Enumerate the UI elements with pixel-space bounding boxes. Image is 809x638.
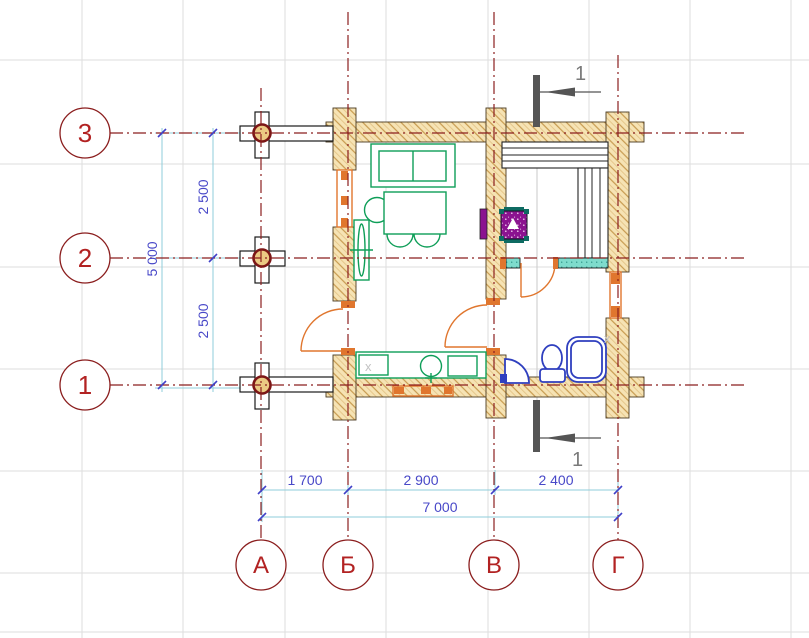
sauna-stove xyxy=(480,207,529,243)
window-left xyxy=(337,170,352,227)
axis-bubble-label: А xyxy=(253,552,269,579)
dining-set xyxy=(365,192,447,247)
axis-bubble-label: Г xyxy=(612,552,625,579)
wall-left-lower xyxy=(333,355,356,420)
entry-door xyxy=(301,301,355,355)
wall-internal-lower xyxy=(486,355,506,418)
shower-tray xyxy=(567,337,606,382)
dim-left-upper: 2 500 xyxy=(195,179,211,214)
floor-plan-canvas: x x 1 1 xyxy=(0,0,809,638)
dim-left-lower: 2 500 xyxy=(195,303,211,338)
section-cut-bar xyxy=(533,75,540,127)
wall-left-middle xyxy=(333,227,356,301)
washbasin xyxy=(500,359,529,383)
toilet xyxy=(540,345,565,382)
section-mark-bottom: 1 xyxy=(533,400,601,471)
sauna-bench-side xyxy=(578,168,608,258)
section-label: 1 xyxy=(572,449,583,471)
porch xyxy=(240,112,333,409)
kitchen-counter: x xyxy=(356,352,486,383)
axis-bubble-label: 1 xyxy=(78,370,92,400)
wall-internal-upper xyxy=(486,108,506,299)
dim-bottom-1: 1 700 xyxy=(287,472,322,488)
section-mark-top: 1 xyxy=(533,63,601,127)
section-label: 1 xyxy=(575,63,586,85)
window-right xyxy=(610,272,621,318)
section-arrow xyxy=(545,434,575,443)
sauna-door xyxy=(521,263,555,297)
block-marker: x xyxy=(604,331,611,346)
washroom-door xyxy=(445,298,500,355)
sofa xyxy=(371,144,455,187)
floor-plan-drawing: x x 1 1 xyxy=(0,0,809,638)
dining-table xyxy=(384,192,446,234)
section-arrow xyxy=(545,88,575,97)
wall-left-upper xyxy=(333,108,356,170)
axis-bubble-label: В xyxy=(486,552,502,579)
axis-bubble-label: Б xyxy=(340,552,356,579)
sauna-bench-top xyxy=(502,142,608,168)
wall-top xyxy=(326,122,644,142)
section-cut-bar xyxy=(533,400,540,452)
partition-wall xyxy=(500,257,608,269)
axis-lines xyxy=(110,12,745,540)
axis-bubble-label: 3 xyxy=(78,118,92,148)
dim-bottom-total: 7 000 xyxy=(422,499,457,515)
wall-cabinet xyxy=(350,220,373,280)
dim-bottom-3: 2 400 xyxy=(538,472,573,488)
dim-left-total: 5 000 xyxy=(144,241,160,276)
background-grid xyxy=(0,0,809,638)
axis-bubble-label: 2 xyxy=(78,243,92,273)
block-marker: x xyxy=(365,359,372,374)
dim-bottom-2: 2 900 xyxy=(403,472,438,488)
dimension-ticks xyxy=(158,129,622,521)
